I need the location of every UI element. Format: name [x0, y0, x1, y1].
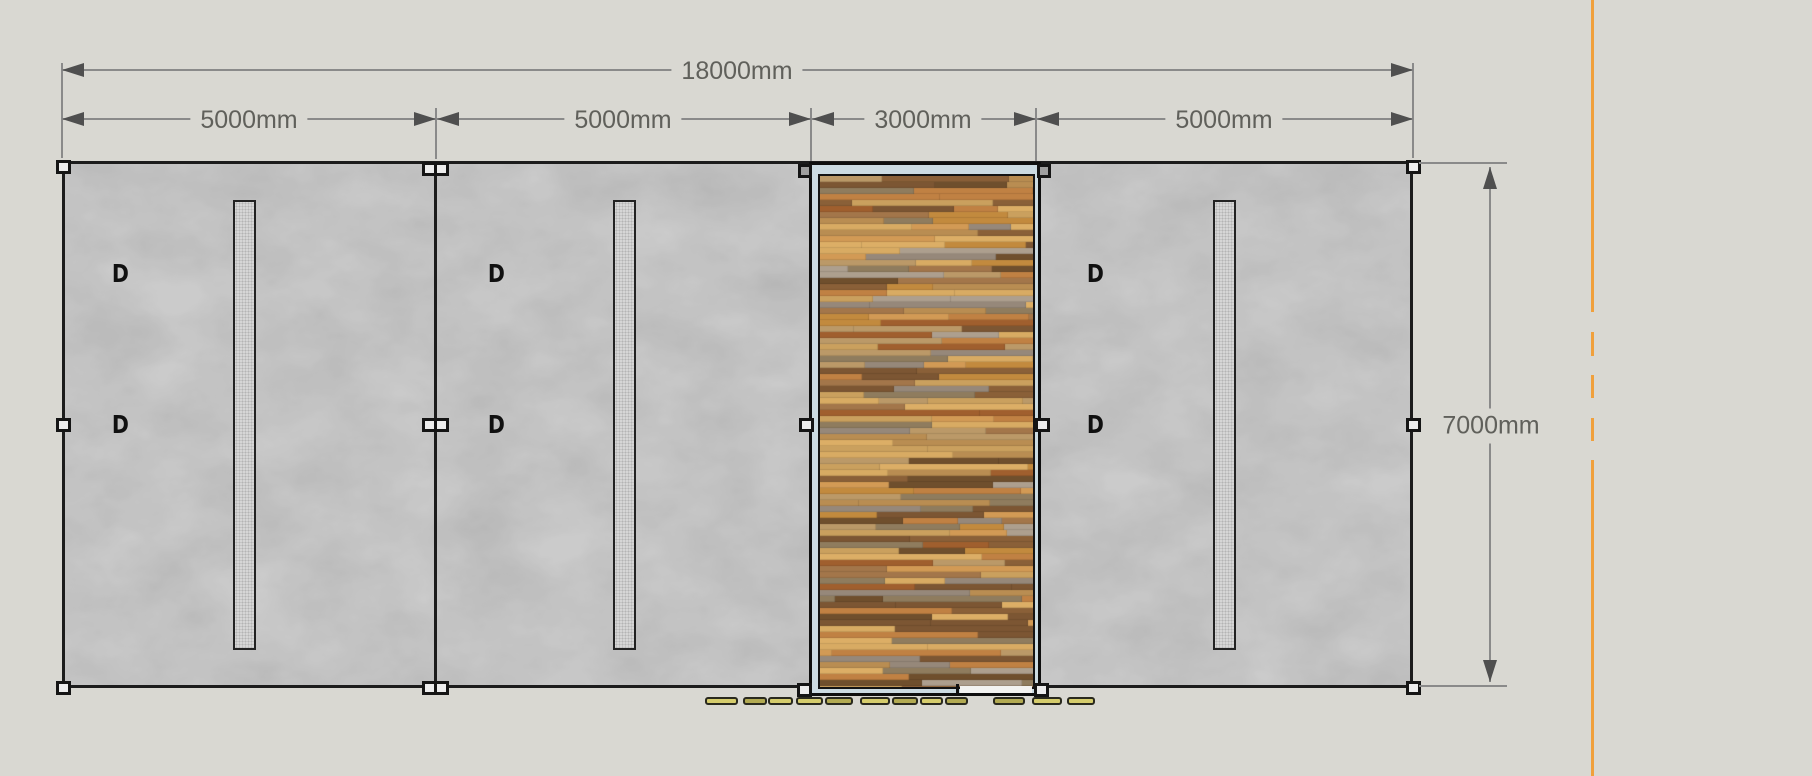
extension-line: [1419, 162, 1507, 164]
panel-post-top-right: [1037, 164, 1051, 178]
double-post-divider-top: [422, 162, 449, 176]
panel-post-mid-left: [799, 418, 814, 432]
post-mid-left: [56, 418, 71, 432]
threshold-segment: [705, 697, 738, 705]
post-bottom-left: [56, 681, 71, 695]
door-marker: D: [488, 264, 505, 284]
concrete-texture: [65, 164, 1410, 685]
extension-line: [61, 63, 63, 158]
door-marker: D: [1087, 415, 1104, 435]
dimension-label-bay1: 5000mm: [190, 106, 307, 135]
pilaster-strip-bay2[interactable]: [613, 200, 636, 650]
extension-line: [1419, 685, 1507, 687]
panel-bottom-white-band: [960, 686, 1032, 693]
threshold-segment: [768, 697, 793, 705]
wood-floor-texture: [820, 176, 1033, 687]
dimension-label-total: 18000mm: [671, 57, 802, 86]
threshold-segment: [1032, 697, 1062, 705]
threshold-segment: [743, 697, 767, 705]
dimension-label-bay2: 5000mm: [564, 106, 681, 135]
dimension-label-middle: 3000mm: [864, 106, 981, 135]
panel-post-bottom-right: [1034, 683, 1049, 697]
middle-room-panel[interactable]: [809, 162, 1041, 696]
arrowhead-left-icon: [62, 112, 84, 126]
arrowhead-right-icon: [789, 112, 811, 126]
panel-post-top-left: [798, 164, 812, 178]
door-marker: D: [1087, 264, 1104, 284]
arrowhead-left-icon: [62, 63, 84, 77]
post-top-left: [56, 160, 71, 174]
arrowhead-right-icon: [1391, 112, 1413, 126]
door-marker: D: [112, 415, 129, 435]
threshold-segment: [860, 697, 890, 705]
threshold-segment: [1067, 697, 1095, 705]
post-mid-right: [1406, 418, 1421, 432]
arrowhead-right-icon: [1391, 63, 1413, 77]
arrowhead-left-icon: [1037, 112, 1059, 126]
arrowhead-right-icon: [414, 112, 436, 126]
drawing-viewport[interactable]: D D D D D D 18000mm 5000mm 5000mm 3000mm…: [0, 0, 1812, 776]
threshold-segment: [796, 697, 823, 705]
arrowhead-left-icon: [437, 112, 459, 126]
extension-line: [1412, 63, 1414, 158]
dimension-label-bay4: 5000mm: [1165, 106, 1282, 135]
panel-post-bottom-left: [797, 683, 812, 697]
arrowhead-right-icon: [1014, 112, 1036, 126]
dimension-label-height: 7000mm: [1434, 409, 1547, 444]
arrowhead-up-icon: [1483, 167, 1497, 189]
door-marker: D: [488, 415, 505, 435]
threshold-segment: [945, 697, 968, 705]
post-bottom-right: [1406, 681, 1421, 695]
wall-panel[interactable]: [62, 161, 1413, 688]
panel-bottom-tick: [956, 684, 959, 693]
panel-post-mid-right: [1035, 418, 1050, 432]
double-post-divider-mid: [422, 418, 449, 432]
wood-floor[interactable]: [818, 174, 1035, 689]
arrowhead-down-icon: [1483, 660, 1497, 682]
threshold-segment: [920, 697, 943, 705]
threshold-segment: [993, 697, 1025, 705]
threshold-segment: [892, 697, 918, 705]
arrowhead-left-icon: [812, 112, 834, 126]
threshold-segment: [825, 697, 853, 705]
double-post-divider-bottom: [422, 681, 449, 695]
pilaster-strip-bay4[interactable]: [1213, 200, 1236, 650]
pilaster-strip-bay1[interactable]: [233, 200, 256, 650]
axis-line-orange[interactable]: [1591, 0, 1594, 776]
door-marker: D: [112, 264, 129, 284]
